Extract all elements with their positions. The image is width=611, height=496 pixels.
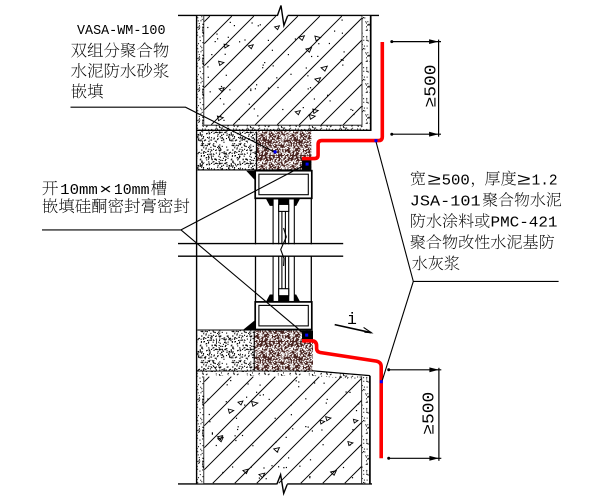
svg-text:JSA-101: JSA-101 [410,193,481,211]
svg-text:VASA-WM-100: VASA-WM-100 [77,24,166,39]
svg-text:10mm: 10mm [114,181,150,199]
svg-text:≥500: ≥500 [420,392,439,435]
svg-text:10mm: 10mm [60,181,98,199]
svg-text:1.2: 1.2 [532,171,558,189]
svg-text:×: × [99,181,112,198]
svg-text:i: i [347,310,357,329]
svg-text:≥500: ≥500 [421,65,440,108]
svg-text:≥: ≥ [428,170,441,188]
svg-text:PMC-421: PMC-421 [491,214,558,232]
svg-text:≥: ≥ [517,170,530,188]
svg-text:500: 500 [442,171,470,189]
